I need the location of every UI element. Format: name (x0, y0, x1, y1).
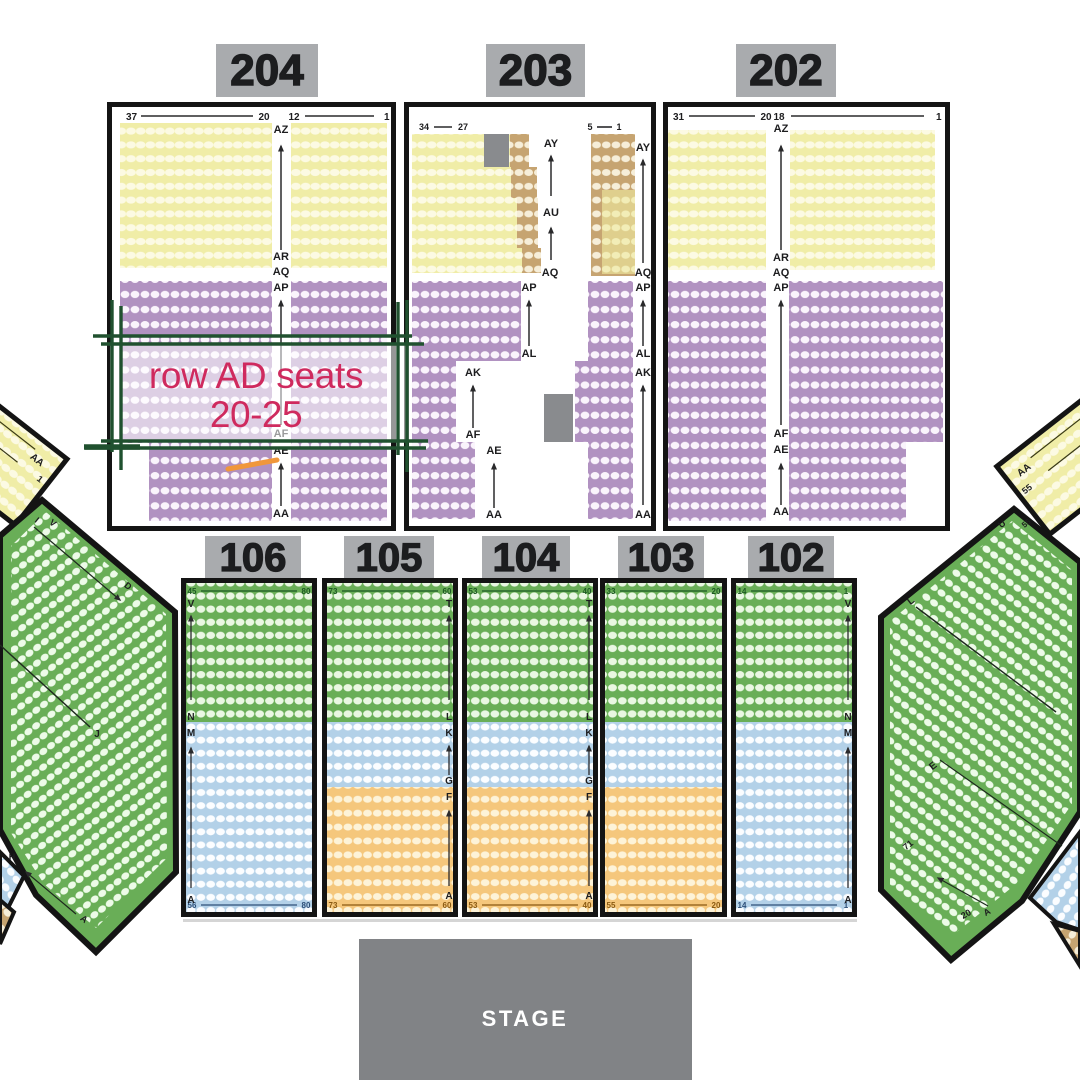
svg-text:27: 27 (458, 122, 468, 132)
svg-text:A: A (187, 895, 194, 906)
svg-text:V: V (845, 599, 852, 610)
svg-text:AK: AK (465, 367, 481, 379)
svg-text:60: 60 (443, 901, 452, 910)
svg-text:AL: AL (522, 348, 537, 360)
svg-text:A: A (585, 891, 592, 902)
svg-text:AP: AP (773, 282, 788, 294)
svg-text:73: 73 (329, 901, 338, 910)
svg-text:K: K (585, 728, 593, 739)
svg-text:AE: AE (773, 444, 788, 456)
svg-text:N: N (844, 712, 851, 723)
svg-text:80: 80 (302, 901, 311, 910)
svg-text:M: M (187, 728, 195, 739)
svg-text:A: A (844, 895, 851, 906)
svg-text:104: 104 (493, 536, 560, 580)
svg-text:AF: AF (466, 429, 481, 441)
svg-text:STAGE: STAGE (482, 1006, 569, 1031)
svg-text:20: 20 (712, 901, 721, 910)
svg-text:34: 34 (419, 122, 429, 132)
svg-text:103: 103 (628, 536, 695, 580)
svg-text:102: 102 (758, 536, 825, 580)
svg-text:1: 1 (384, 112, 390, 123)
svg-text:AQ: AQ (542, 267, 559, 279)
svg-text:AQ: AQ (635, 267, 652, 279)
svg-text:12: 12 (288, 112, 300, 123)
svg-text:AK: AK (635, 367, 651, 379)
svg-text:AR: AR (273, 251, 289, 263)
svg-text:20: 20 (258, 112, 270, 123)
svg-text:L: L (446, 712, 452, 723)
svg-text:204: 204 (230, 46, 304, 95)
svg-text:G: G (445, 776, 453, 787)
svg-text:AQ: AQ (773, 267, 790, 279)
svg-text:AA: AA (773, 506, 789, 518)
svg-text:40: 40 (583, 587, 592, 596)
svg-text:AL: AL (636, 348, 651, 360)
svg-text:AZ: AZ (774, 123, 789, 135)
svg-text:20-25: 20-25 (210, 394, 302, 435)
svg-text:203: 203 (499, 46, 572, 95)
svg-text:AR: AR (773, 252, 789, 264)
svg-text:37: 37 (126, 112, 138, 123)
svg-text:106: 106 (220, 536, 287, 580)
svg-text:AP: AP (635, 282, 650, 294)
svg-text:53: 53 (469, 901, 478, 910)
svg-text:V: V (188, 599, 195, 610)
svg-text:53: 53 (469, 587, 478, 596)
svg-text:G: G (585, 776, 593, 787)
svg-text:AZ: AZ (274, 124, 289, 136)
svg-text:80: 80 (302, 587, 311, 596)
svg-text:55: 55 (607, 901, 616, 910)
svg-text:AA: AA (486, 509, 502, 521)
svg-text:AA: AA (273, 508, 289, 520)
svg-text:T: T (586, 599, 592, 610)
svg-text:A: A (445, 891, 452, 902)
svg-text:N: N (187, 712, 194, 723)
svg-text:F: F (586, 792, 592, 803)
svg-text:T: T (446, 599, 452, 610)
svg-text:18: 18 (773, 112, 785, 123)
svg-text:AP: AP (273, 282, 288, 294)
svg-text:31: 31 (673, 112, 685, 123)
svg-text:AQ: AQ (273, 266, 290, 278)
svg-text:AA: AA (635, 509, 651, 521)
svg-text:5: 5 (587, 122, 592, 132)
svg-text:73: 73 (329, 587, 338, 596)
svg-text:1: 1 (844, 587, 849, 596)
svg-text:60: 60 (443, 587, 452, 596)
svg-text:20: 20 (712, 587, 721, 596)
svg-text:AU: AU (543, 207, 559, 219)
svg-text:AY: AY (544, 138, 559, 150)
svg-text:14: 14 (738, 587, 747, 596)
svg-text:row AD seats: row AD seats (149, 355, 363, 396)
svg-text:K: K (445, 728, 453, 739)
svg-text:20: 20 (760, 112, 772, 123)
svg-text:F: F (446, 792, 452, 803)
svg-text:14: 14 (738, 901, 747, 910)
svg-text:AF: AF (774, 428, 789, 440)
svg-text:1: 1 (616, 122, 621, 132)
svg-text:AP: AP (521, 282, 536, 294)
svg-text:H: H (9, 852, 16, 862)
svg-text:40: 40 (583, 901, 592, 910)
svg-text:M: M (844, 728, 852, 739)
svg-text:105: 105 (356, 536, 423, 580)
svg-text:45: 45 (188, 587, 197, 596)
svg-text:1: 1 (936, 112, 942, 123)
svg-text:AY: AY (636, 142, 651, 154)
svg-text:33: 33 (607, 587, 616, 596)
svg-text:L: L (586, 712, 592, 723)
svg-text:J: J (94, 729, 100, 740)
svg-text:202: 202 (749, 46, 822, 95)
svg-text:AE: AE (486, 445, 501, 457)
